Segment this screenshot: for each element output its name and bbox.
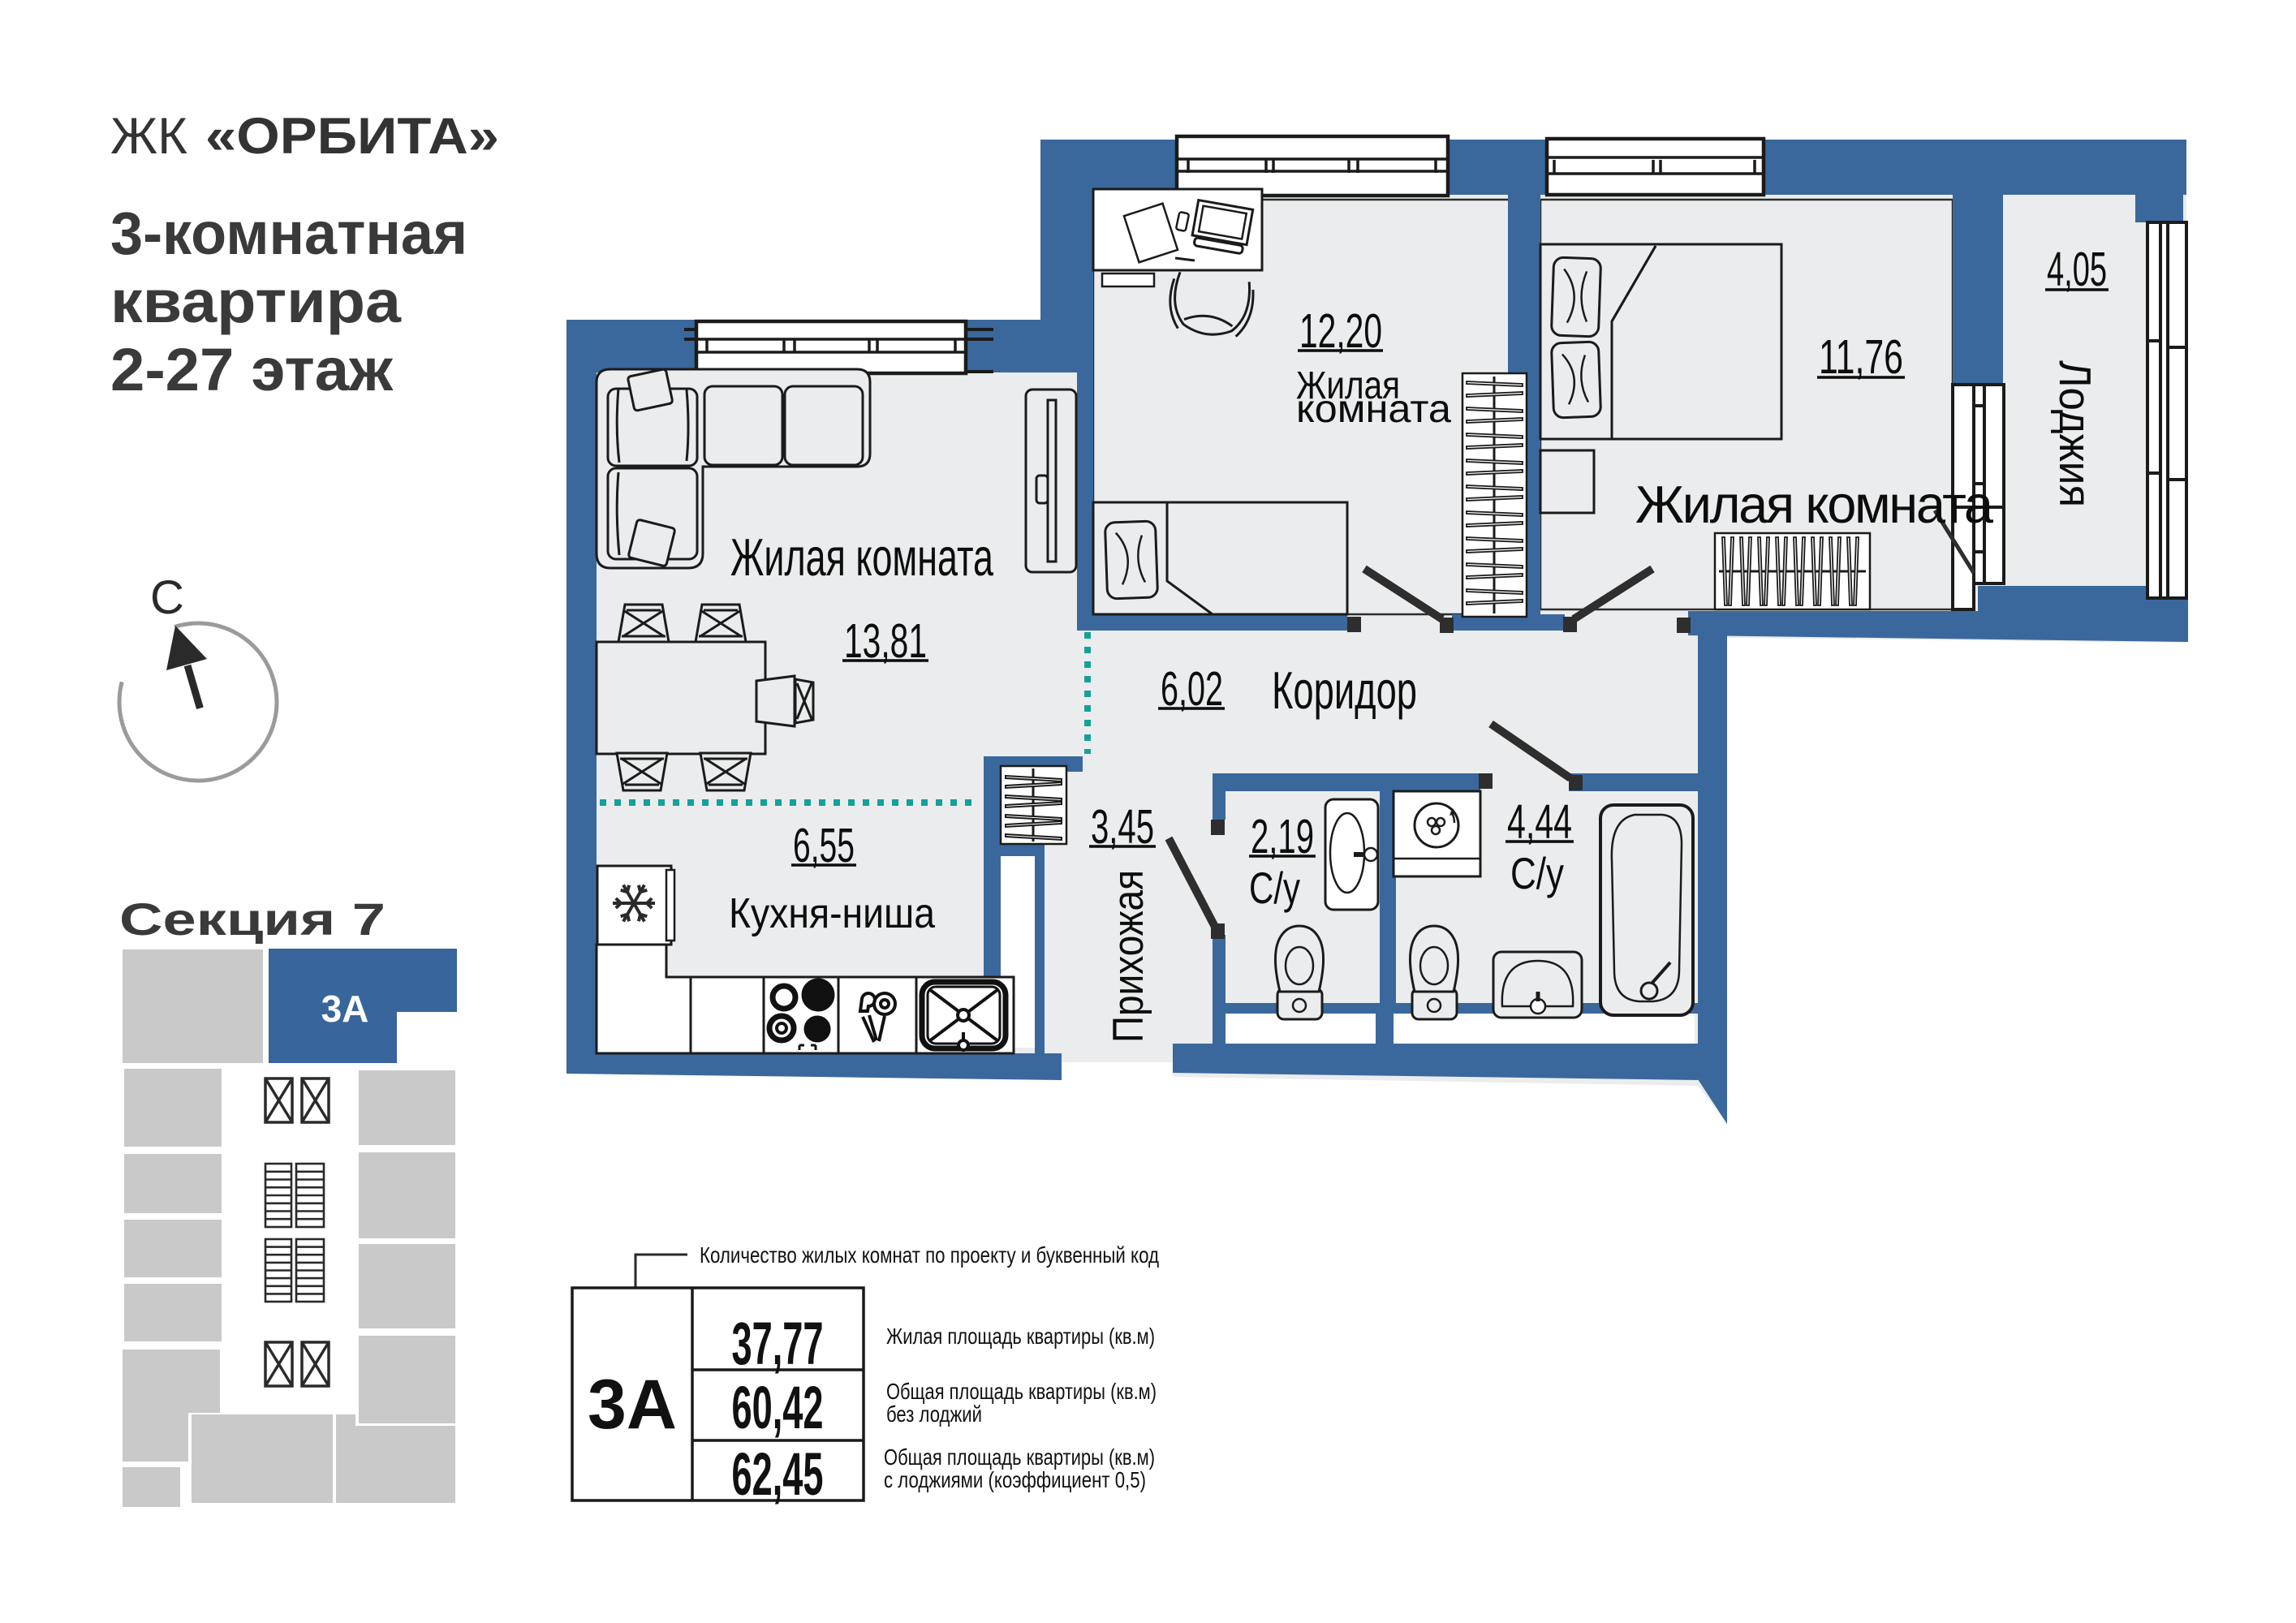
svg-text:С: С	[150, 571, 184, 624]
svg-text:60,42: 60,42	[732, 1374, 824, 1441]
svg-text:Общая площадь квартиры (кв.м): Общая площадь квартиры (кв.м)	[884, 1444, 1155, 1470]
svg-text:комната: комната	[1296, 388, 1451, 431]
svg-text:Секция 7: Секция 7	[119, 893, 386, 945]
svg-text:Жилая площадь квартиры (кв.м): Жилая площадь квартиры (кв.м)	[886, 1324, 1155, 1349]
svg-text:Кухня-ниша: Кухня-ниша	[729, 890, 935, 937]
svg-text:Жилая комната: Жилая комната	[1635, 475, 1994, 534]
svg-text:Количество жилых комнат по про: Количество жилых комнат по проекту и бук…	[700, 1242, 1159, 1268]
svg-text:Общая площадь квартиры (кв.м): Общая площадь квартиры (кв.м)	[886, 1379, 1157, 1404]
svg-text:62,45: 62,45	[732, 1440, 824, 1508]
svg-text:3-комнатная: 3-комнатная	[110, 200, 467, 267]
svg-text:11,76: 11,76	[1819, 330, 1903, 384]
svg-text:3А: 3А	[321, 988, 369, 1030]
svg-text:Прихожая: Прихожая	[1105, 870, 1152, 1043]
svg-text:С/у: С/у	[1510, 848, 1564, 898]
svg-text:3А: 3А	[588, 1366, 677, 1444]
svg-text:С/у: С/у	[1249, 863, 1300, 913]
svg-text:Лоджия: Лоджия	[2050, 360, 2100, 507]
svg-text:Коридор: Коридор	[1272, 661, 1417, 720]
svg-text:квартира: квартира	[110, 268, 402, 335]
svg-text:«ОРБИТА»: «ОРБИТА»	[205, 108, 499, 165]
svg-text:без лоджий: без лоджий	[886, 1401, 982, 1427]
svg-text:37,77: 37,77	[732, 1310, 824, 1377]
svg-text:с лоджиями (коэффициент 0,5): с лоджиями (коэффициент 0,5)	[884, 1467, 1146, 1492]
svg-text:2-27 этаж: 2-27 этаж	[110, 336, 394, 403]
svg-text:4,05: 4,05	[2047, 243, 2107, 296]
svg-text:Жилая комната: Жилая комната	[730, 527, 994, 587]
svg-text:ЖК: ЖК	[110, 108, 187, 165]
